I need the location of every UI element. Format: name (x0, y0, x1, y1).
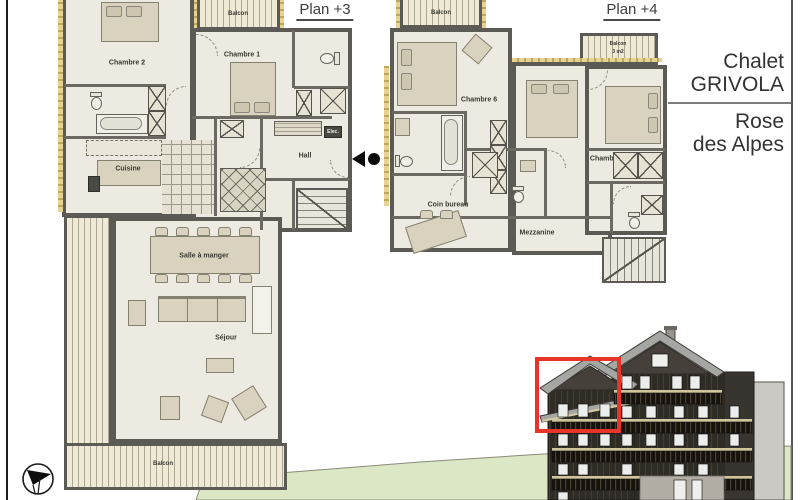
plan4-balcony-top-label: Balcon (431, 10, 451, 16)
chair (176, 227, 189, 236)
bathtub (96, 114, 148, 134)
chair (176, 274, 189, 283)
room-label-cuisine: Cuisine (115, 166, 140, 173)
chair (197, 274, 210, 283)
room-label-salle-a-manger: Salle à manger (179, 253, 228, 260)
shower (472, 152, 498, 178)
shower (320, 88, 346, 114)
sink (520, 160, 536, 172)
plan3-balcony-top-label: Balcon (228, 11, 248, 17)
chair (239, 274, 252, 283)
toilet (320, 53, 334, 64)
chair (440, 210, 453, 219)
chair (155, 227, 168, 236)
appliance (88, 176, 100, 192)
partition (392, 111, 466, 114)
plan4-balcony-small-label2: 3 m2 (612, 49, 623, 55)
chalet-line1: Chalet (691, 50, 784, 73)
section-marker-icon (368, 153, 380, 165)
sidebar-residence-name: Rose des Alpes (693, 110, 784, 156)
toilet (400, 156, 413, 167)
plan3-balcony-bottom-label: Balcon (153, 461, 173, 467)
partition (610, 181, 613, 233)
partition (292, 30, 295, 88)
partition (544, 148, 547, 216)
bed (526, 80, 578, 138)
sidebar-chalet-name: Chalet GRIVOLA (691, 50, 784, 96)
armchair (160, 396, 180, 420)
yellow-insulation (384, 66, 389, 206)
toilet (629, 217, 640, 229)
wardrobe (613, 152, 638, 179)
bench (274, 121, 322, 136)
yellow-insulation (396, 0, 400, 28)
sink (395, 118, 410, 136)
tv-cabinet (252, 286, 272, 334)
partition (64, 136, 166, 139)
section-marker-icon (352, 151, 365, 167)
bed (230, 62, 276, 116)
wardrobe (490, 120, 507, 145)
room-label-chambre-1: Chambre 1 (224, 52, 260, 59)
yellow-insulation (58, 0, 63, 212)
plan3-balcony-bottom (64, 443, 287, 490)
coffee-table (206, 358, 234, 373)
residence-line2: des Alpes (693, 133, 784, 156)
room-label-mezzanine: Mezzanine (519, 230, 554, 237)
room-label-chambre-6: Chambre 6 (461, 97, 497, 104)
wardrobe (638, 152, 663, 179)
room-label-coin-bureau: Coin bureau (428, 202, 469, 209)
elec-label: Elec. (327, 129, 339, 135)
plan3-title: Plan +3 (296, 1, 353, 21)
bed (101, 2, 159, 42)
chair (218, 227, 231, 236)
tiled-floor (162, 140, 214, 214)
room-label-hall: Hall (299, 153, 312, 160)
toilet (91, 97, 102, 110)
partition (392, 173, 466, 176)
chair (420, 210, 433, 219)
armchair (128, 300, 146, 326)
kitchen-island (97, 160, 161, 186)
staircase (296, 188, 348, 230)
entry-mat (220, 168, 266, 212)
bathtub (441, 115, 463, 171)
blueprint-page: Plan +3 Balcon Balcon Chambre 2 Chambre … (0, 0, 800, 500)
staircase (602, 237, 666, 283)
toilet (513, 191, 524, 203)
plan4-balcony-small-label1: Balcon (610, 41, 627, 47)
partition (292, 178, 295, 230)
north-compass-icon (20, 461, 56, 497)
room-label-chambre-2: Chambre 2 (109, 60, 145, 67)
apartment-highlight-box (535, 357, 621, 433)
chair (197, 227, 210, 236)
sofa (158, 296, 246, 322)
partition (214, 116, 217, 216)
partition (587, 181, 665, 184)
wardrobe (148, 111, 166, 136)
yellow-insulation (512, 58, 662, 62)
kitchen-counter (86, 140, 162, 156)
chair (155, 274, 168, 283)
yellow-insulation (482, 0, 486, 28)
bed (397, 42, 457, 106)
wardrobe (148, 86, 166, 111)
residence-line1: Rose (693, 110, 784, 133)
room-label-sejour: Séjour (215, 335, 237, 342)
sidebar-divider (668, 102, 791, 104)
shower (641, 195, 663, 215)
partition (262, 178, 350, 181)
wardrobe (296, 90, 312, 116)
chair (239, 227, 252, 236)
wardrobe (220, 120, 244, 138)
toilet (334, 52, 340, 65)
chalet-line2: GRIVOLA (691, 73, 784, 96)
yellow-insulation (280, 0, 284, 30)
partition (587, 148, 665, 151)
chair (218, 274, 231, 283)
plan4-title: Plan +4 (603, 1, 660, 21)
bed (605, 86, 661, 144)
